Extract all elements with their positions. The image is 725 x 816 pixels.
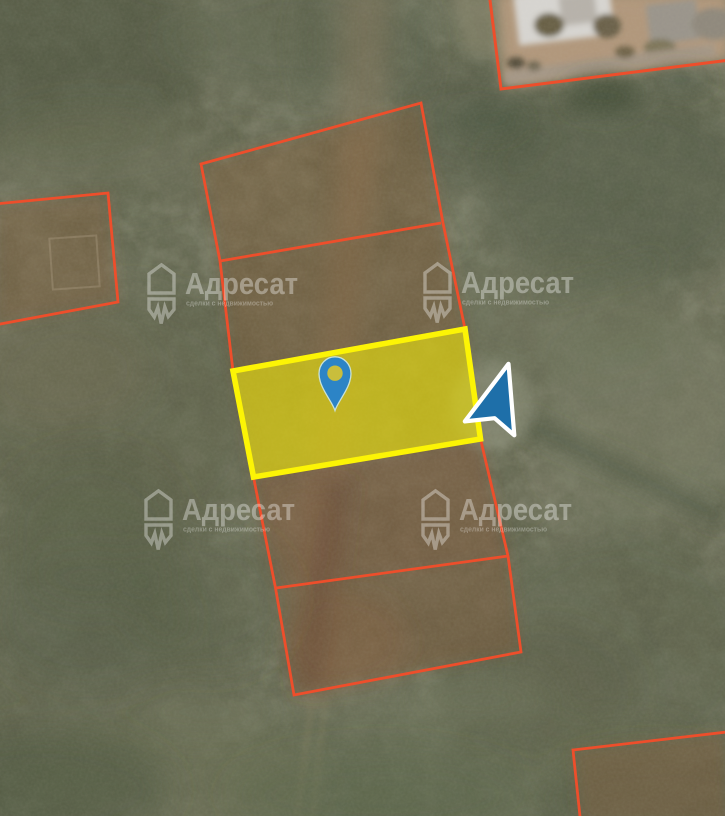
svg-text:сделки с недвижимостью: сделки с недвижимостью xyxy=(462,300,549,307)
svg-text:Адресат: Адресат xyxy=(182,492,295,527)
svg-text:Адресат: Адресат xyxy=(459,492,572,527)
svg-text:сделки с недвижимостью: сделки с недвижимостью xyxy=(460,527,547,534)
svg-text:Адресат: Адресат xyxy=(461,265,574,300)
svg-text:Адресат: Адресат xyxy=(185,266,298,301)
svg-text:сделки с недвижимостью: сделки с недвижимостью xyxy=(183,527,270,534)
svg-text:сделки с недвижимостью: сделки с недвижимостью xyxy=(186,301,273,308)
